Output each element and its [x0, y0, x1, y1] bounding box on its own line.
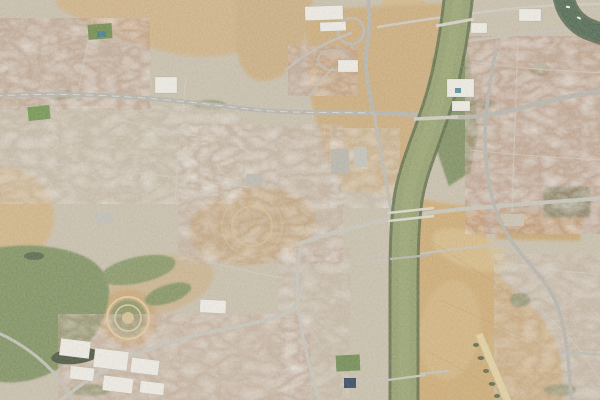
- grain-light-overlay: [0, 0, 600, 400]
- satellite-map-svg: [0, 0, 600, 400]
- satellite-map-canvas[interactable]: [0, 0, 600, 400]
